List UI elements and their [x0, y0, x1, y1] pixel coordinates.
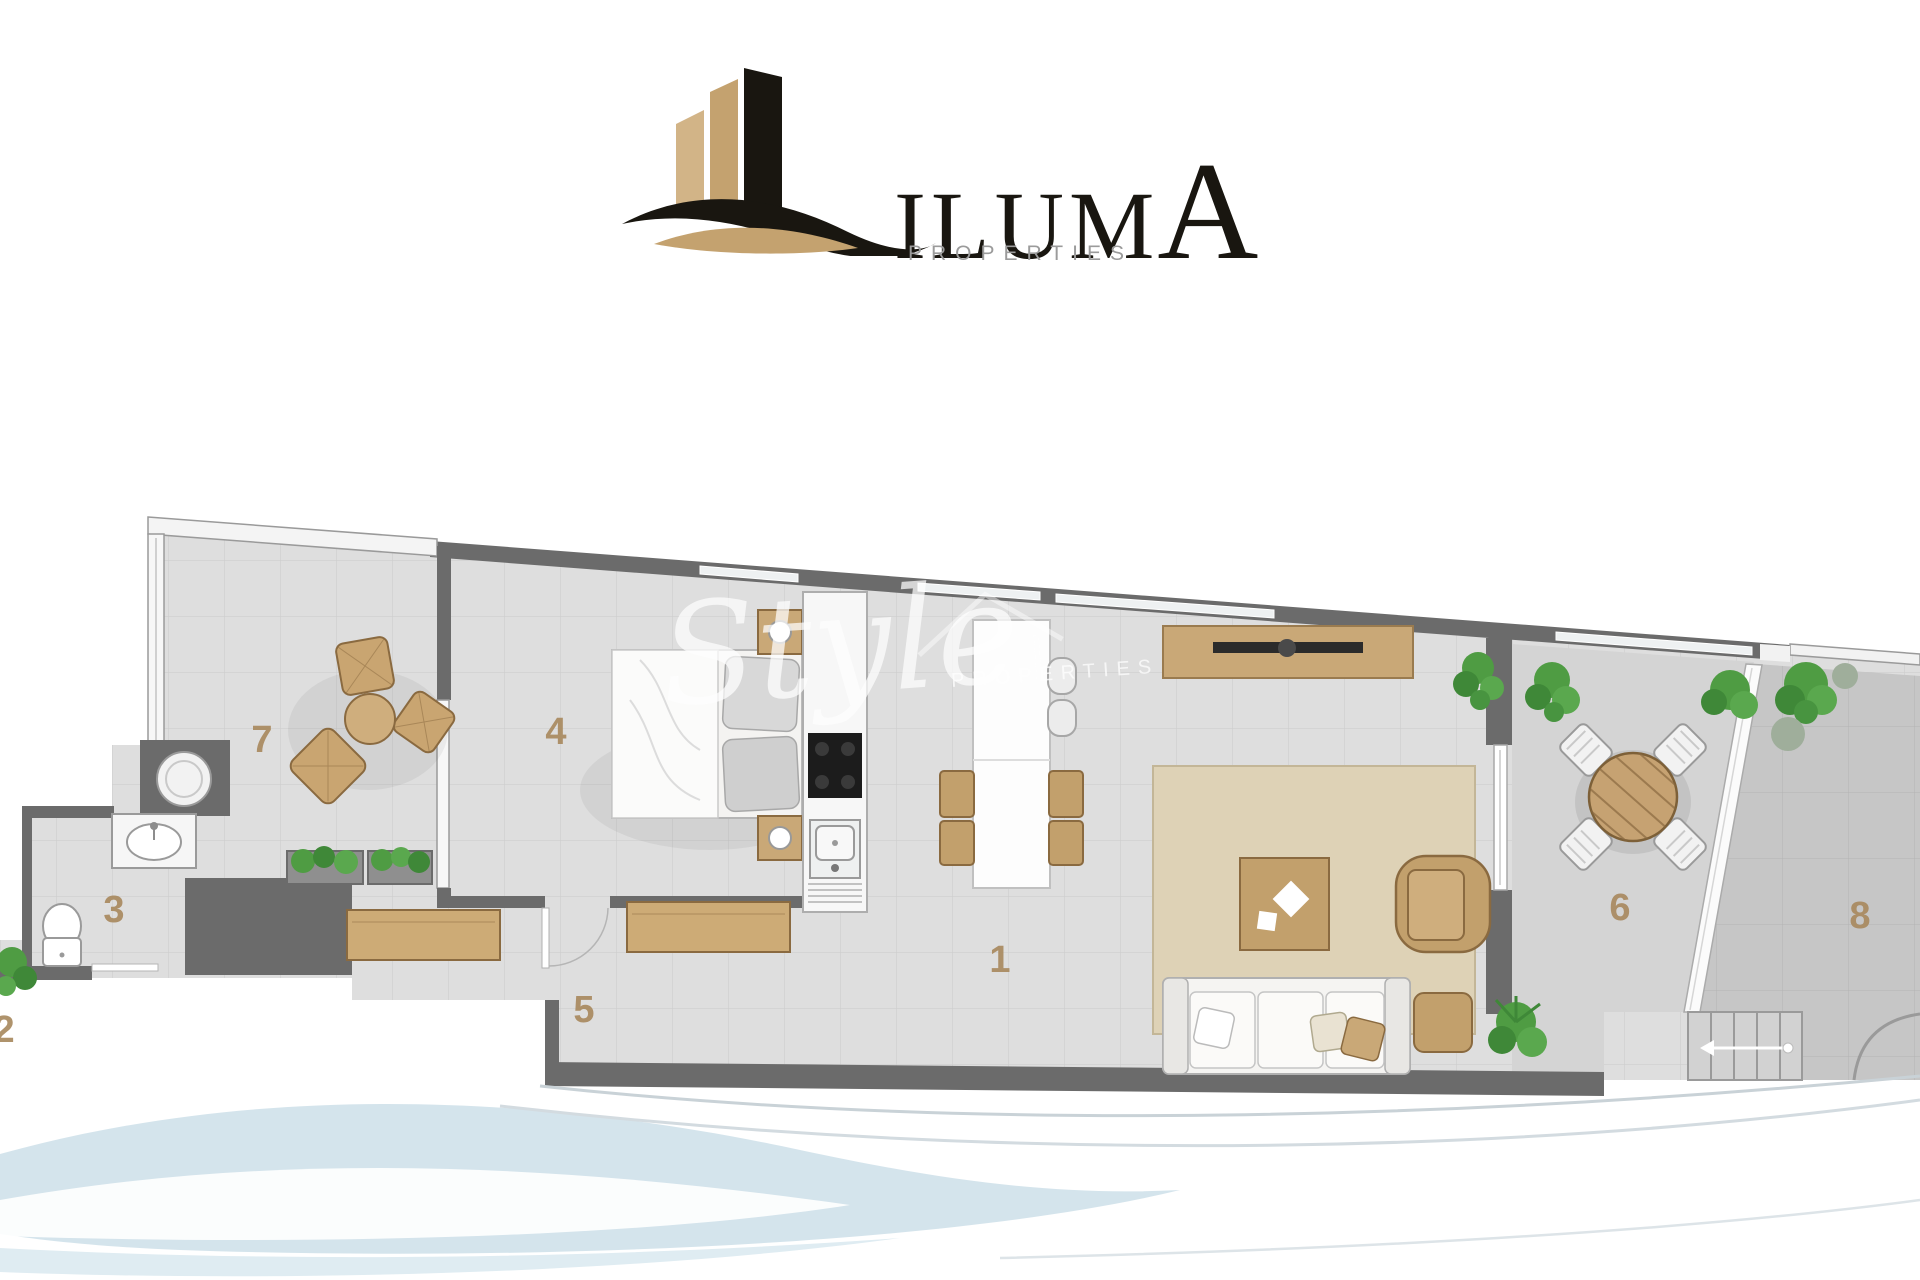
wall-bath-top [22, 806, 114, 818]
door-top-solarium [1760, 644, 1790, 662]
nightstand [758, 816, 802, 860]
dining-chair [940, 771, 974, 817]
room-label-7: 7 [251, 719, 272, 761]
butterfly-chair [335, 636, 395, 696]
bush [1832, 663, 1858, 689]
page: ILUM A PROPERTIES [0, 0, 1920, 1280]
glass-door [1494, 745, 1507, 890]
planter-box [287, 846, 363, 884]
bathroom-sink [112, 814, 196, 868]
planter-box [368, 847, 432, 884]
pillow [1193, 1007, 1236, 1050]
room-label-1: 1 [989, 939, 1010, 981]
room-label-5: 5 [573, 989, 594, 1031]
bush [1771, 717, 1805, 751]
dining-chair [940, 821, 974, 865]
sideboard [627, 902, 790, 952]
dining-chair [1049, 821, 1083, 865]
room-label-2: 2 [0, 1009, 15, 1051]
toilet [43, 904, 81, 966]
floor-plan: 1 2 3 4 5 6 7 8 Style PROPERTIES [0, 0, 1920, 1280]
room-label-6: 6 [1609, 887, 1630, 929]
wall-bath-left [22, 806, 32, 978]
room-label-8: 8 [1849, 895, 1870, 937]
pouf [1414, 993, 1472, 1052]
room-label-4: 4 [545, 711, 566, 753]
wall-bottom-step [545, 1000, 559, 1070]
armchair [1396, 856, 1490, 952]
watermark-script-text: Style [655, 551, 1024, 739]
room-label-3: 3 [103, 889, 124, 931]
round-table [345, 694, 395, 744]
wave-decoration [0, 1076, 1920, 1276]
dining-chair [1049, 771, 1083, 817]
kitchen-sink [810, 820, 860, 878]
bath-sliding-door [92, 964, 158, 971]
coffee-table [1240, 858, 1329, 950]
wall-block [185, 878, 352, 975]
stairs [1688, 1012, 1802, 1080]
sofa [1163, 978, 1410, 1074]
sideboard [347, 910, 500, 960]
bar-stool [1048, 700, 1076, 736]
pillow [1340, 1016, 1386, 1062]
wall-bedroom-bottom-left [437, 896, 545, 908]
stove [808, 733, 862, 798]
tv-unit [1163, 626, 1413, 678]
wall-divider-7-4 [437, 546, 451, 700]
